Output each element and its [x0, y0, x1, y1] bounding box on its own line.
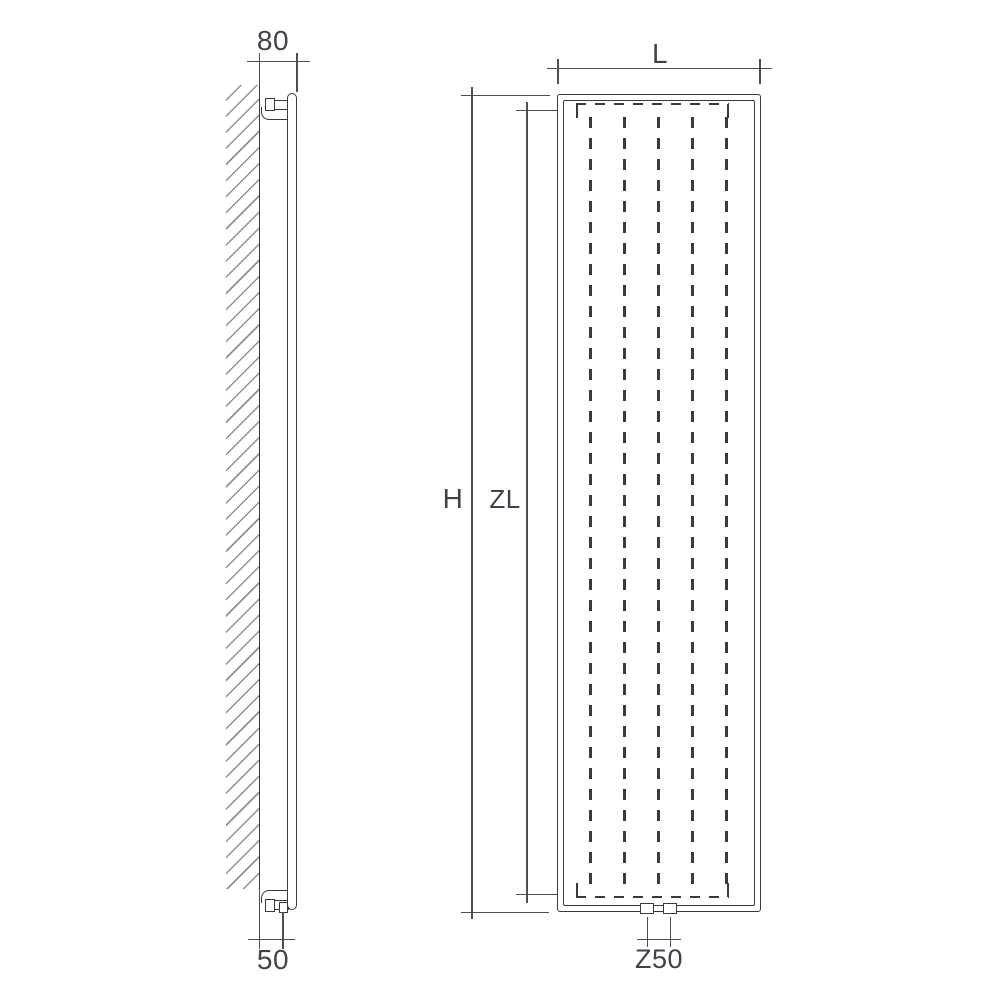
pipe-connector-right — [663, 903, 677, 914]
dim-L-label: L — [640, 40, 680, 68]
dim-ZL-label: ZL — [487, 486, 523, 512]
dim-Z50-label: Z50 — [630, 946, 688, 973]
dim-ZL-ext-top — [516, 110, 561, 111]
dim-50-label: 50 — [250, 946, 296, 974]
dim-L-tick-right — [759, 59, 761, 84]
dim-Z50-line — [637, 939, 681, 940]
dim-ZL-line — [526, 102, 528, 903]
pipe-connector-left — [640, 903, 654, 914]
fin-frame-corner-top-left — [576, 104, 578, 118]
dim-50-line — [248, 939, 295, 940]
dim-H-line — [471, 87, 473, 919]
fin-frame-corner-top-right — [727, 104, 729, 118]
fin-dashed-line — [657, 117, 660, 884]
fin-dashed-line — [589, 117, 592, 884]
fin-frame-corner-bottom-right — [727, 883, 729, 897]
radiator-panel-side — [287, 93, 297, 910]
wall-hatching — [226, 85, 259, 889]
dim-H-ext-bottom — [461, 912, 549, 913]
dim-80-tick-right — [296, 53, 298, 92]
fin-frame-corner-bottom-left — [576, 883, 578, 897]
fin-frame-dashed-top — [576, 103, 729, 105]
dim-L-line — [547, 68, 772, 69]
dim-H-label: H — [440, 485, 466, 513]
dim-L-tick-left — [557, 59, 559, 84]
dim-Z50-tick-left — [647, 917, 649, 947]
dim-80-line — [247, 61, 310, 62]
fin-dashed-line — [691, 117, 694, 884]
dim-80-label: 80 — [250, 27, 296, 55]
fin-frame-dashed-bottom — [576, 896, 729, 898]
radiator-technical-drawing: 80 50 H ZL L — [0, 0, 1000, 1000]
fin-dashed-line — [623, 117, 626, 884]
fin-dashed-line — [725, 117, 728, 884]
dim-80-tick-left — [259, 53, 261, 85]
wall-line — [259, 85, 261, 890]
dim-Z50-tick-right — [670, 917, 672, 947]
dim-H-ext-top — [461, 95, 550, 96]
